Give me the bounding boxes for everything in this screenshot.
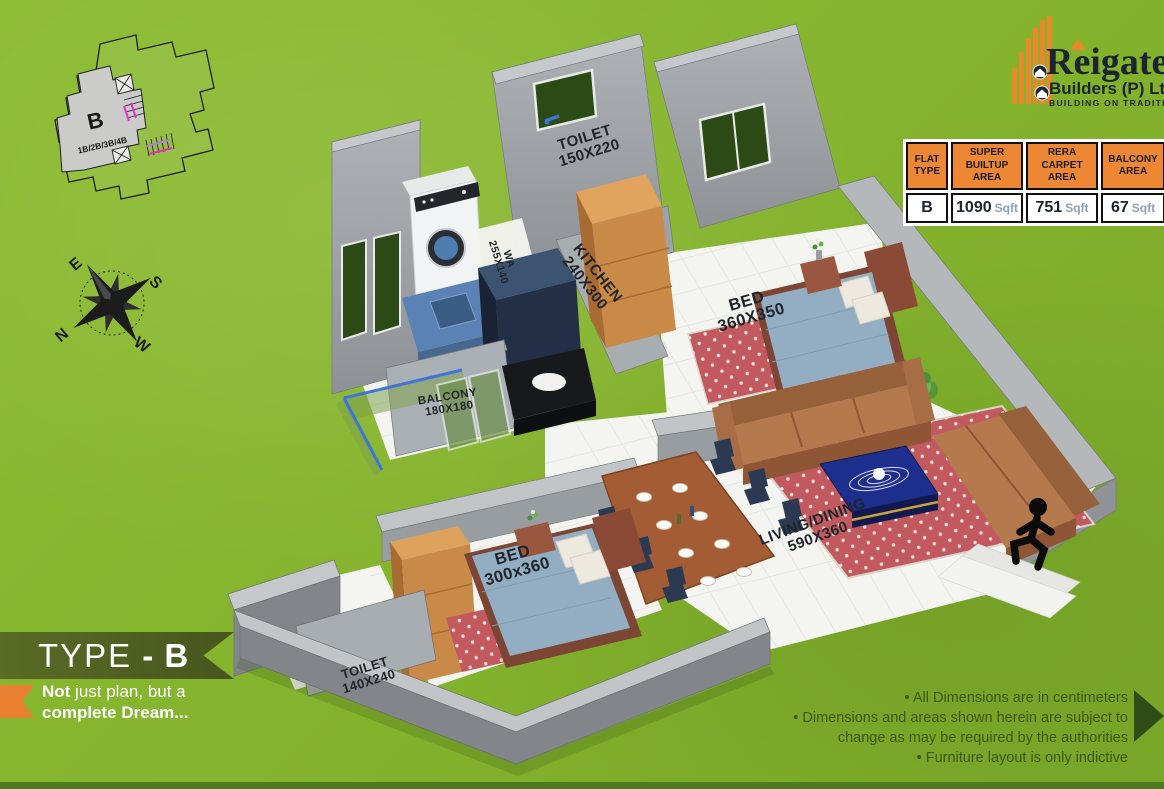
tagline-bold: Not <box>42 682 70 701</box>
area-table-header-balcony: BALCONY AREA <box>1101 142 1164 190</box>
tagline-rest: just plan, but a <box>70 682 185 701</box>
rera-carpet-value: 751 <box>1035 199 1062 217</box>
balcony-unit: Sqft <box>1132 201 1155 215</box>
area-table-balcony: 67 Sqft <box>1101 193 1164 223</box>
type-banner-letter: - B <box>142 637 189 675</box>
rera-carpet-unit: Sqft <box>1065 201 1088 215</box>
type-banner-prefix: TYPE <box>38 637 132 675</box>
logo-tagline-text: BUILDING ON TRADITION <box>1049 98 1164 108</box>
site-plan-inset: B 1B/2B/3B/4B <box>55 35 214 199</box>
compass-rose: E S W N <box>48 239 175 366</box>
tagline: Not just plan, but a complete Dream... <box>42 681 188 723</box>
area-table-header-super-builtup: SUPER BUILTUP AREA <box>951 142 1023 190</box>
builder-logo: Reigate Builders (P) Ltd BUILDING ON TRA… <box>1012 16 1164 108</box>
area-table: FLAT TYPE SUPER BUILTUP AREA RERA CARPET… <box>903 139 1164 226</box>
super-builtup-unit: Sqft <box>995 201 1018 215</box>
compass-south: S <box>145 273 165 293</box>
compass-north: N <box>52 325 72 345</box>
balcony-value: 67 <box>1111 199 1129 217</box>
compass-east: E <box>67 254 86 274</box>
area-table-super-builtup: 1090 Sqft <box>951 193 1023 223</box>
area-table-flat-type: B <box>906 193 948 223</box>
note-line-3: change as may be required by the authori… <box>793 728 1128 748</box>
type-banner: TYPE - B <box>0 632 234 679</box>
logo-subtitle-text: Builders (P) Ltd <box>1049 79 1164 98</box>
brochure-page: B 1B/2B/3B/4B E S W N <box>0 0 1164 789</box>
disclaimer-notes: • All Dimensions are in centimeters • Di… <box>793 688 1128 768</box>
note-line-4: • Furniture layout is only indictive <box>793 748 1128 768</box>
super-builtup-value: 1090 <box>956 199 992 217</box>
note-line-1: • All Dimensions are in centimeters <box>793 688 1128 708</box>
area-table-header-rera-carpet: RERA CARPET AREA <box>1026 142 1098 190</box>
area-table-header-flat-type: FLAT TYPE <box>906 142 948 190</box>
bottom-edge-strip <box>0 782 1164 789</box>
tagline-line2: complete Dream... <box>42 702 188 723</box>
area-table-rera-carpet: 751 Sqft <box>1026 193 1098 223</box>
note-line-2: • Dimensions and areas shown herein are … <box>793 708 1128 728</box>
logo-brand-text: Reigate <box>1046 41 1164 83</box>
